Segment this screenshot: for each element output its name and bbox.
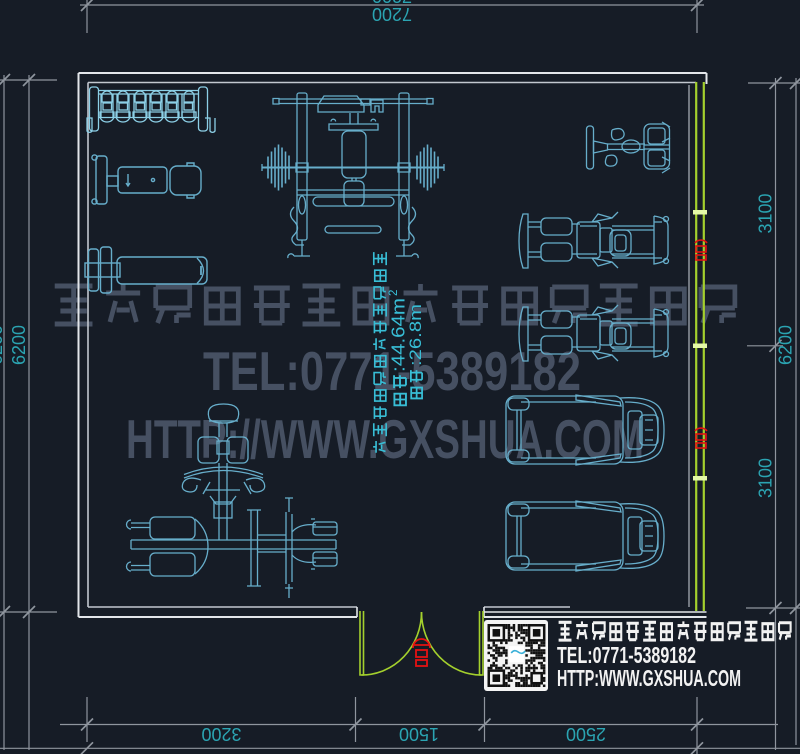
svg-text:1500: 1500 xyxy=(399,724,439,744)
svg-text:2500: 2500 xyxy=(566,724,606,744)
svg-text:HTTP://WWW.GXSHUA.COM: HTTP://WWW.GXSHUA.COM xyxy=(126,408,644,470)
svg-text::26.8m: :26.8m xyxy=(406,304,425,366)
svg-text:6200: 6200 xyxy=(0,325,6,365)
svg-text:6200: 6200 xyxy=(776,325,796,365)
svg-text:HTTP:WWW.GXSHUA.COM: HTTP:WWW.GXSHUA.COM xyxy=(557,665,741,691)
svg-text:7200: 7200 xyxy=(372,4,412,24)
svg-text:3100: 3100 xyxy=(756,458,776,498)
svg-text:7200: 7200 xyxy=(372,0,412,6)
svg-text:3200: 3200 xyxy=(201,724,241,744)
svg-text:2: 2 xyxy=(388,290,400,296)
svg-text:6200: 6200 xyxy=(9,325,29,365)
svg-text:3100: 3100 xyxy=(756,193,776,233)
